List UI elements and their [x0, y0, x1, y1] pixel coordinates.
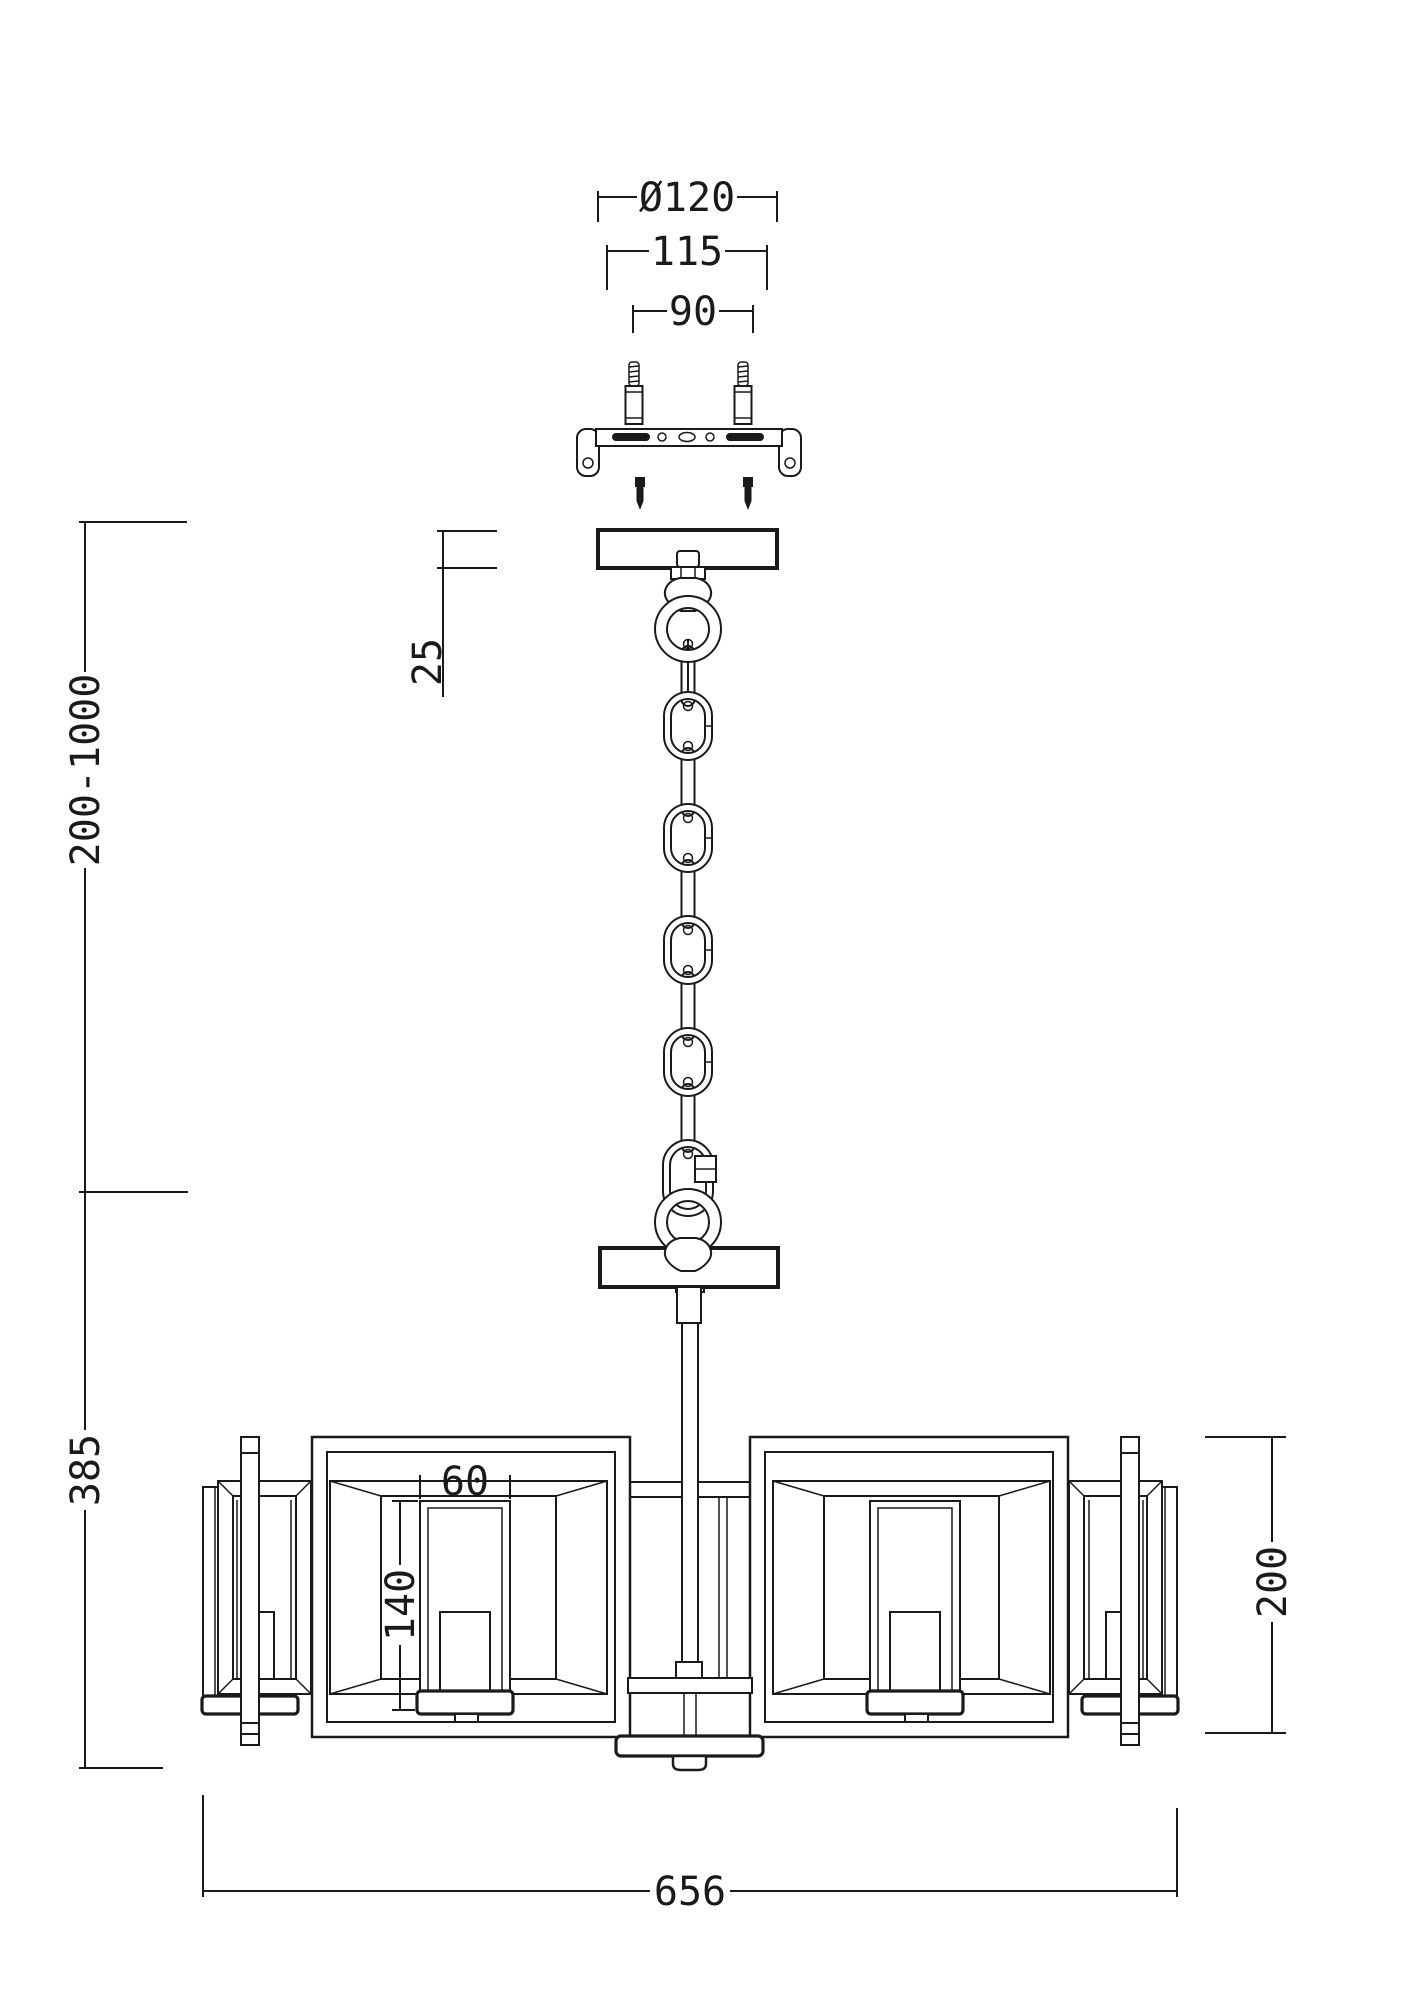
- chandelier-dimension-drawing: Ø120 115 90: [0, 0, 1413, 2000]
- wall-plug-right: [735, 362, 752, 424]
- bottom-plate: [616, 1736, 763, 1756]
- dimension-mount-diameter: Ø120: [598, 175, 777, 222]
- candle-left: [440, 1612, 490, 1691]
- drum-bottom-band: [628, 1678, 752, 1693]
- canopy-nipple: [677, 551, 699, 567]
- dimension-plate-width: 115: [607, 229, 767, 290]
- shade-base-right: [867, 1691, 963, 1714]
- dim-label-plate-width: 115: [651, 229, 723, 275]
- post-left: [241, 1437, 259, 1745]
- drum-body: [202, 1323, 1178, 1770]
- screw-right: [743, 477, 753, 510]
- dim-label-screw-spacing: 90: [669, 289, 717, 335]
- dimension-drum-height: 200: [1205, 1437, 1296, 1733]
- fixture-canopy: [600, 1238, 778, 1323]
- bracket-slot-right: [726, 433, 764, 441]
- dim-label-body-height: 385: [63, 1434, 109, 1506]
- hanging-ring-top: [655, 596, 721, 706]
- dimension-shade-width: 60: [420, 1459, 510, 1505]
- suspension-chain: [664, 692, 712, 1152]
- wall-plug-left: [626, 362, 643, 424]
- hook-ball-bottom: [665, 1238, 711, 1271]
- dim-label-canopy-height: 25: [405, 638, 451, 686]
- shade-base-left: [417, 1691, 513, 1714]
- dim-label-total-width: 656: [654, 1869, 726, 1915]
- rod-connector: [676, 1662, 702, 1678]
- ceiling-canopy: [598, 530, 777, 579]
- dim-label-shade-height: 140: [378, 1569, 424, 1641]
- finial-knob: [673, 1756, 706, 1770]
- mounting-bracket: [577, 429, 801, 476]
- rod-upper-section: [677, 1287, 701, 1323]
- dim-label-drum-height: 200: [1250, 1546, 1296, 1618]
- dim-label-suspension-range: 200-1000: [63, 674, 109, 867]
- screw-left: [635, 477, 645, 510]
- drum-rear-seam: [719, 1497, 727, 1678]
- diagram-canvas: Ø120 115 90: [0, 0, 1413, 2000]
- center-rod: [682, 1323, 698, 1663]
- dimension-canopy-height: 25: [405, 531, 497, 697]
- post-right: [1121, 1437, 1139, 1745]
- glass-shade-left: [420, 1501, 510, 1691]
- dimension-screw-spacing: 90: [633, 289, 753, 335]
- glass-shade-right: [870, 1501, 960, 1691]
- dimension-total-width: 656: [203, 1795, 1177, 1915]
- dim-label-shade-width: 60: [441, 1459, 489, 1505]
- candle-right: [890, 1612, 940, 1691]
- dim-label-mount-diameter: Ø120: [639, 175, 735, 221]
- dimension-suspension-range: 200-1000 385: [63, 522, 188, 1768]
- bracket-slot-left: [612, 433, 650, 441]
